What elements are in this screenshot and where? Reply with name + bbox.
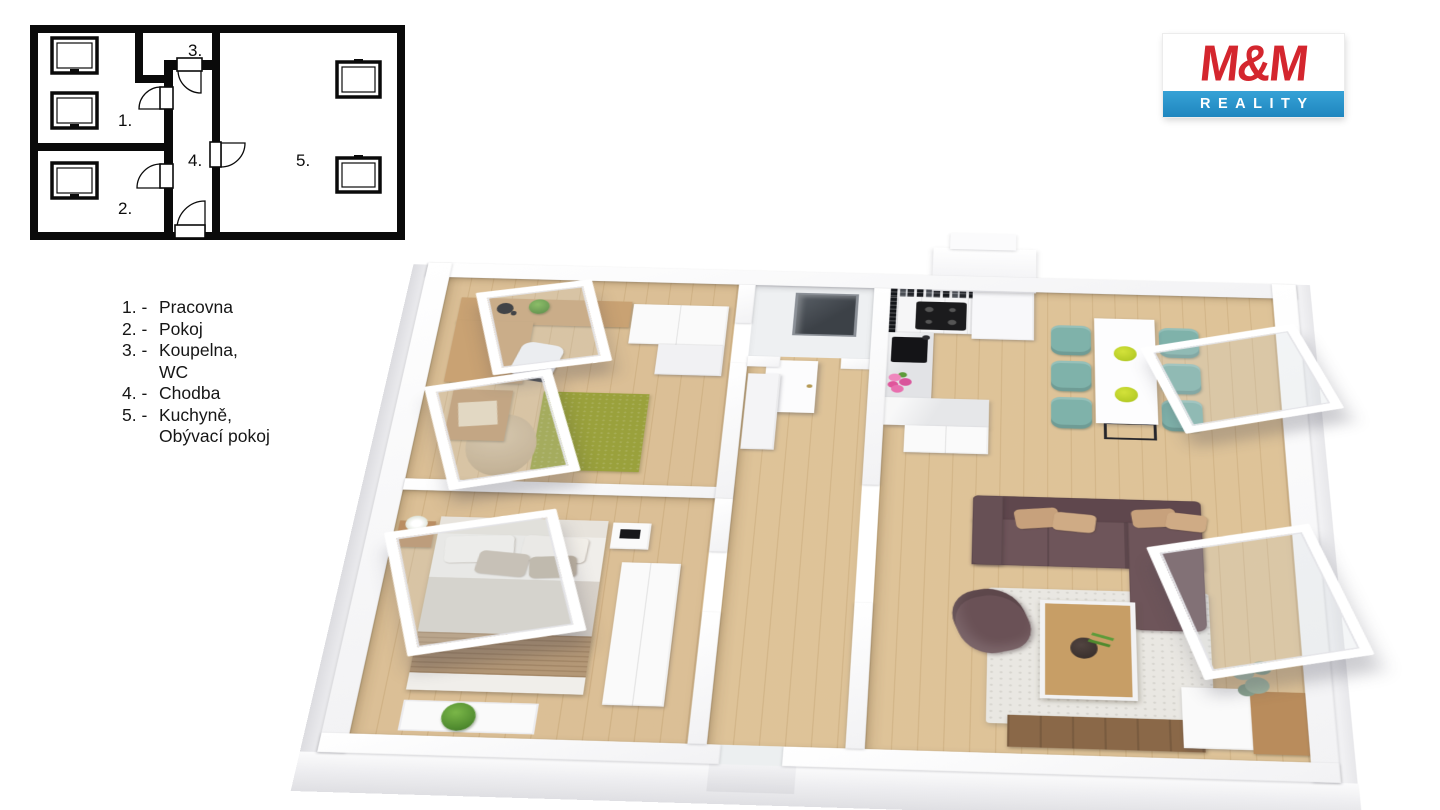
window-2d xyxy=(337,59,380,97)
tv-bench xyxy=(1007,715,1206,753)
legend-number: 5. - xyxy=(122,405,159,427)
legend-room-name: Pokoj xyxy=(159,319,203,341)
flower-bouquet xyxy=(883,369,915,398)
floor-plan-3d xyxy=(375,115,1315,810)
window-2d xyxy=(52,38,97,73)
fruit-bowl xyxy=(1115,387,1139,403)
legend-item: 1. - Pracovna xyxy=(122,297,270,319)
kitchen-peninsula xyxy=(883,397,989,427)
window-frame-bedroom xyxy=(384,509,587,657)
floorplan-graphic: 1. 2. 3. 4. 5. 1. - Pracovna 2. - Pokoj … xyxy=(0,0,1440,810)
room-label-2: 2. xyxy=(118,199,132,218)
legend-room-name: Koupelna, WC xyxy=(159,340,238,383)
legend-item: 2. - Pokoj xyxy=(122,319,270,341)
peninsula-cabinets xyxy=(903,425,988,454)
wall-bathroom xyxy=(841,358,870,369)
sofa-arm xyxy=(972,495,1004,565)
entrance-step xyxy=(706,764,796,794)
door-handle xyxy=(806,384,812,388)
window-2d xyxy=(52,163,97,198)
office-sideboard xyxy=(628,304,729,346)
legend: 1. - Pracovna 2. - Pokoj 3. - Koupelna, … xyxy=(122,297,270,448)
legend-number: 4. - xyxy=(122,383,159,405)
cooktop xyxy=(915,301,967,330)
room-label-1: 1. xyxy=(118,111,132,130)
room-label-3: 3. xyxy=(188,41,202,60)
legend-number: 1. - xyxy=(122,297,159,319)
logo-brand-text: M&M xyxy=(1160,32,1347,94)
legend-number: 3. - xyxy=(122,340,159,362)
legend-item: 4. - Chodba xyxy=(122,383,270,405)
legend-room-name: Kuchyně, Obývací pokoj xyxy=(159,405,270,448)
legend-room-name: Pracovna xyxy=(159,297,233,319)
window-2d xyxy=(52,93,97,128)
cabinet-top-block xyxy=(950,233,1016,251)
hallway-wardrobe xyxy=(740,373,780,449)
legend-room-name: Chodba xyxy=(159,383,220,405)
window-2d xyxy=(337,155,380,192)
table-trestle xyxy=(1104,422,1157,440)
floor-plan-2d: 1. 2. 3. 4. 5. xyxy=(30,25,405,240)
entrance-threshold xyxy=(719,745,784,766)
room-label-4: 4. xyxy=(188,151,202,170)
sofa-pillow xyxy=(1052,512,1097,534)
legend-item: 3. - Koupelna, WC xyxy=(122,340,270,383)
window-frame-office xyxy=(476,279,613,375)
legend-item: 5. - Kuchyně, Obývací pokoj xyxy=(122,405,270,448)
office-cabinet xyxy=(654,344,724,376)
dining-table xyxy=(1094,318,1158,424)
apartment-3d xyxy=(317,262,1341,783)
room-label-5: 5. xyxy=(296,151,310,170)
mm-reality-logo: M&M REALITY xyxy=(1163,34,1344,117)
fruit-bowl xyxy=(1114,346,1137,362)
kitchen-sink xyxy=(891,337,928,363)
plant-sprigs xyxy=(1091,633,1114,641)
table-plant-pot xyxy=(1070,637,1098,659)
logo-tagline: REALITY xyxy=(1192,96,1314,112)
dining-chair xyxy=(1051,360,1092,391)
shower xyxy=(792,293,859,337)
phone-on-nightstand xyxy=(619,529,640,539)
dining-chair xyxy=(1051,397,1092,429)
coffee-table xyxy=(1040,600,1138,701)
logo-band: REALITY xyxy=(1163,91,1344,117)
tall-cabinet xyxy=(971,291,1034,341)
dining-chair xyxy=(1051,325,1091,356)
legend-number: 2. - xyxy=(122,319,159,341)
wall-bathroom xyxy=(747,356,780,367)
